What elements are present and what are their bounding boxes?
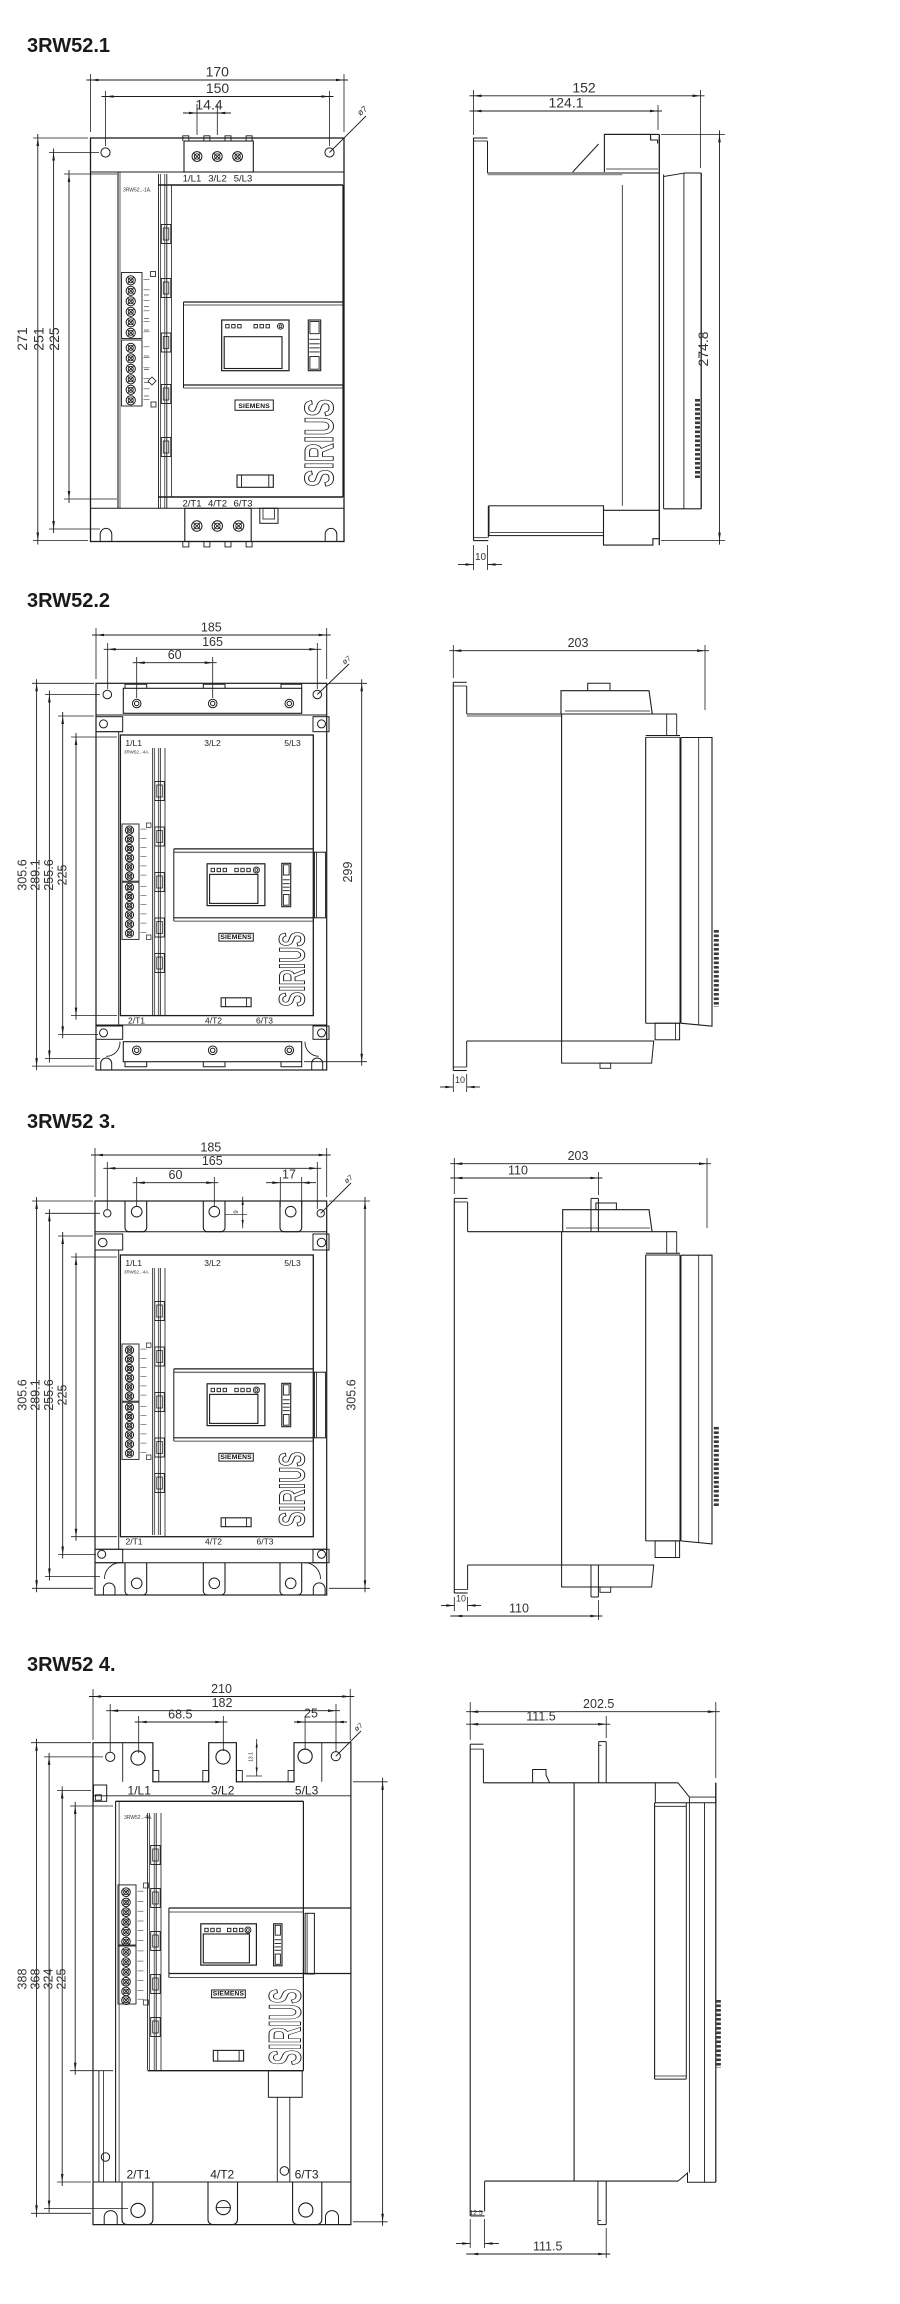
svg-text:305.6: 305.6 (16, 1379, 30, 1410)
svg-text:225: 225 (56, 1385, 70, 1406)
svg-text:3RW52 3.: 3RW52 3. (27, 1111, 116, 1133)
svg-text:3/L2: 3/L2 (204, 1258, 221, 1268)
svg-text:2/T1: 2/T1 (126, 2168, 150, 2182)
svg-text:111.5: 111.5 (533, 2240, 562, 2254)
svg-text:203: 203 (568, 636, 589, 650)
svg-text:SIRIUS: SIRIUS (296, 399, 342, 487)
svg-text:4/T2: 4/T2 (205, 1537, 222, 1547)
svg-text:324: 324 (42, 1969, 56, 1990)
svg-text:202.5: 202.5 (583, 1697, 614, 1711)
svg-text:1/L1: 1/L1 (125, 1258, 142, 1268)
svg-text:111.5: 111.5 (526, 1710, 555, 1724)
svg-text:1/L1: 1/L1 (125, 738, 142, 748)
svg-text:2/T1: 2/T1 (128, 1016, 145, 1026)
svg-text:60: 60 (169, 1168, 183, 1182)
svg-text:5/L3: 5/L3 (284, 738, 301, 748)
svg-text:4/T2: 4/T2 (205, 1016, 222, 1026)
svg-text:5/L3: 5/L3 (234, 174, 253, 185)
svg-text:SIEMENS: SIEMENS (220, 1454, 252, 1461)
svg-text:3RW52..-1A.: 3RW52..-1A. (123, 188, 152, 194)
svg-text:2/T1: 2/T1 (125, 1537, 142, 1547)
svg-text:68.5: 68.5 (168, 1708, 192, 1722)
svg-text:13.1: 13.1 (249, 1752, 255, 1762)
svg-text:3RW52..-4A.: 3RW52..-4A. (124, 1270, 150, 1275)
svg-text:17: 17 (282, 1167, 296, 1181)
svg-text:152: 152 (572, 79, 596, 95)
svg-text:SIEMENS: SIEMENS (213, 1991, 245, 1998)
svg-text:25: 25 (304, 1707, 318, 1721)
svg-text:165: 165 (202, 635, 223, 649)
svg-text:6/T3: 6/T3 (256, 1537, 273, 1547)
svg-text:SIRIUS: SIRIUS (271, 932, 312, 1007)
svg-text:1/L1: 1/L1 (128, 1783, 152, 1797)
svg-text:10: 10 (475, 552, 487, 563)
svg-text:5/L3: 5/L3 (284, 1258, 301, 1268)
svg-text:185: 185 (200, 1141, 221, 1155)
svg-text:289.1: 289.1 (29, 1379, 43, 1410)
svg-text:10: 10 (455, 1075, 465, 1085)
svg-text:388: 388 (16, 1969, 30, 1990)
svg-text:182: 182 (212, 1696, 233, 1710)
svg-text:3RW52.1: 3RW52.1 (27, 35, 110, 57)
svg-text:5/L3: 5/L3 (295, 1783, 319, 1797)
svg-text:3RW52..-4A.: 3RW52..-4A. (124, 750, 150, 755)
svg-text:203: 203 (568, 1149, 589, 1163)
svg-text:150: 150 (206, 80, 230, 96)
svg-text:SIEMENS: SIEMENS (220, 934, 252, 941)
svg-text:170: 170 (206, 64, 230, 80)
svg-text:1/L1: 1/L1 (183, 174, 202, 185)
svg-text:3/L2: 3/L2 (211, 1783, 235, 1797)
svg-text:6/T3: 6/T3 (295, 2168, 319, 2182)
svg-text:SIEMENS: SIEMENS (238, 403, 270, 410)
svg-text:4/T2: 4/T2 (210, 2168, 234, 2182)
svg-text:60: 60 (168, 648, 182, 662)
svg-text:165: 165 (202, 1154, 223, 1168)
svg-text:251: 251 (31, 327, 47, 351)
svg-text:225: 225 (55, 1969, 69, 1990)
svg-text:SIRIUS: SIRIUS (271, 1452, 312, 1527)
svg-text:368: 368 (29, 1969, 43, 1990)
svg-text:225: 225 (56, 865, 70, 886)
svg-text:12.5: 12.5 (469, 2210, 483, 2217)
svg-text:3/L2: 3/L2 (204, 738, 221, 748)
svg-text:255.6: 255.6 (42, 859, 56, 890)
svg-text:110: 110 (509, 1602, 529, 1616)
svg-text:6/T3: 6/T3 (256, 1016, 273, 1026)
svg-text:255.6: 255.6 (42, 1379, 56, 1410)
svg-text:225: 225 (46, 327, 62, 351)
svg-text:210: 210 (211, 1682, 232, 1696)
svg-text:185: 185 (201, 621, 222, 635)
svg-text:3RW52..-4A.: 3RW52..-4A. (124, 1815, 153, 1821)
svg-text:3RW52 4.: 3RW52 4. (27, 1654, 116, 1676)
svg-text:271: 271 (14, 327, 30, 351)
svg-text:14.4: 14.4 (195, 97, 222, 113)
svg-text:289.1: 289.1 (29, 859, 43, 890)
svg-text:274.8: 274.8 (695, 331, 711, 366)
svg-text:305.6: 305.6 (16, 859, 30, 890)
svg-text:SIRIUS: SIRIUS (259, 1988, 310, 2065)
svg-text:3RW52.2: 3RW52.2 (27, 590, 110, 612)
svg-text:110: 110 (508, 1164, 528, 1178)
svg-text:305.6: 305.6 (345, 1379, 359, 1410)
svg-text:124.1: 124.1 (548, 95, 583, 111)
svg-text:3/L2: 3/L2 (208, 174, 227, 185)
svg-text:10: 10 (456, 1594, 466, 1604)
svg-text:299: 299 (341, 862, 355, 883)
